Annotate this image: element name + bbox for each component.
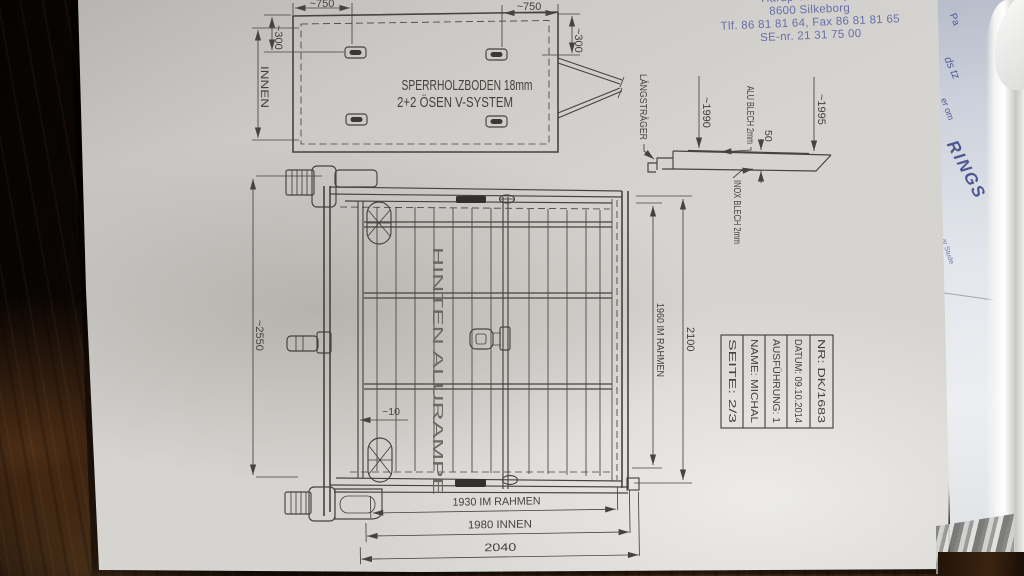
hinge-pin-symbol-top bbox=[367, 202, 391, 244]
title-block-nr: NR: DK/1683 bbox=[815, 339, 826, 424]
svg-text:~2550: ~2550 bbox=[253, 320, 265, 351]
svg-text:~750: ~750 bbox=[310, 0, 335, 10]
flyer-text-fragment: er om bbox=[939, 96, 956, 121]
svg-text:~750: ~750 bbox=[517, 1, 542, 13]
dim-300-left: ~300 bbox=[264, 15, 344, 52]
drawbar-tongue bbox=[558, 58, 624, 118]
svg-text:50: 50 bbox=[762, 130, 774, 142]
svg-text:~10: ~10 bbox=[382, 406, 400, 418]
ramp-label: HINTEN ALURAMPE bbox=[429, 247, 446, 495]
top-view-floor: SPERRHOLZBODEN 18mm 2+2 ÖSEN V-SYSTEM ~7… bbox=[252, 0, 624, 152]
technical-drawing: SPERRHOLZBODEN 18mm 2+2 ÖSEN V-SYSTEM ~7… bbox=[0, 0, 1024, 576]
dim-1930: 1930 IM RAHMEN bbox=[452, 495, 540, 508]
title-block-name: NAME: MICHAL bbox=[748, 339, 759, 424]
latch-handle bbox=[470, 327, 510, 350]
label-inox-blech: INOX BLECH 2mm bbox=[731, 169, 753, 244]
dim-750-right: ~750 bbox=[502, 1, 558, 47]
dim-50: 50 bbox=[761, 130, 774, 183]
svg-text:ALU BLECH 2mm: ALU BLECH 2mm bbox=[744, 86, 755, 144]
dim-2040: 2040 bbox=[484, 542, 516, 555]
label-alu-blech: ALU BLECH 2mm bbox=[721, 86, 755, 152]
svg-text:INOX BLECH 2mm: INOX BLECH 2mm bbox=[731, 180, 742, 244]
title-block-datum: DATUM: 09.10.2014 bbox=[792, 339, 803, 423]
flyer-text-fragment: Pa bbox=[947, 12, 962, 27]
bottom-width-dims: 1930 IM RAHMEN 1980 INNEN 2040 bbox=[359, 487, 639, 564]
svg-text:INNEN: INNEN bbox=[258, 66, 270, 108]
svg-text:LÄNGSTRÄGER: LÄNGSTRÄGER bbox=[637, 74, 649, 140]
floor-material-label: SPERRHOLZBODEN 18mm bbox=[402, 78, 533, 94]
side-profile-section: LÄNGSTRÄGER ~1990 ALU BLECH 2mm 50 ~1995 bbox=[637, 74, 831, 244]
dim-1980: 1980 INNEN bbox=[468, 518, 532, 531]
dim-1990: ~1990 bbox=[699, 76, 712, 148]
hinge-pin-symbol-bottom bbox=[368, 438, 392, 482]
dim-1995: ~1995 bbox=[814, 77, 827, 151]
svg-text:2100: 2100 bbox=[684, 327, 696, 351]
label-laengstraeger: LÄNGSTRÄGER bbox=[637, 74, 654, 159]
floor-system-label: 2+2 ÖSEN V-SYSTEM bbox=[397, 93, 513, 111]
title-block-ausfuehrung: AUSFÜHRUNG: 1 bbox=[770, 339, 782, 423]
svg-text:1960 IM RAHMEN: 1960 IM RAHMEN bbox=[654, 303, 666, 377]
wood-corner-bottom-right bbox=[938, 552, 1024, 576]
flyer-text-fragment-rings: RINGS bbox=[942, 137, 990, 203]
dim-10: ~10 bbox=[360, 406, 408, 420]
title-block: NR: DK/1683 DATUM: 09.10.2014 AUSFÜHRUNG… bbox=[721, 335, 833, 428]
flyer-text-fragment: ds tz bbox=[941, 55, 961, 81]
title-block-seite: SEITE: 2/3 bbox=[726, 339, 737, 424]
dim-750-left: ~750 bbox=[293, 0, 352, 44]
dim-1960: 1960 IM RAHMEN bbox=[632, 203, 666, 468]
svg-text:~300: ~300 bbox=[272, 25, 284, 50]
main-ramp-view: HINTEN ALURAMPE ~2550 1960 IM RAHMEN 210… bbox=[253, 166, 696, 564]
svg-text:~300: ~300 bbox=[572, 28, 584, 53]
dim-2550: ~2550 bbox=[253, 176, 322, 477]
main-drawing-sheet: Hårup Vestervej 9 8600 Silkeborg Tlf. 86… bbox=[0, 0, 1024, 576]
svg-text:~1990: ~1990 bbox=[700, 97, 712, 128]
svg-text:~1995: ~1995 bbox=[815, 94, 827, 125]
